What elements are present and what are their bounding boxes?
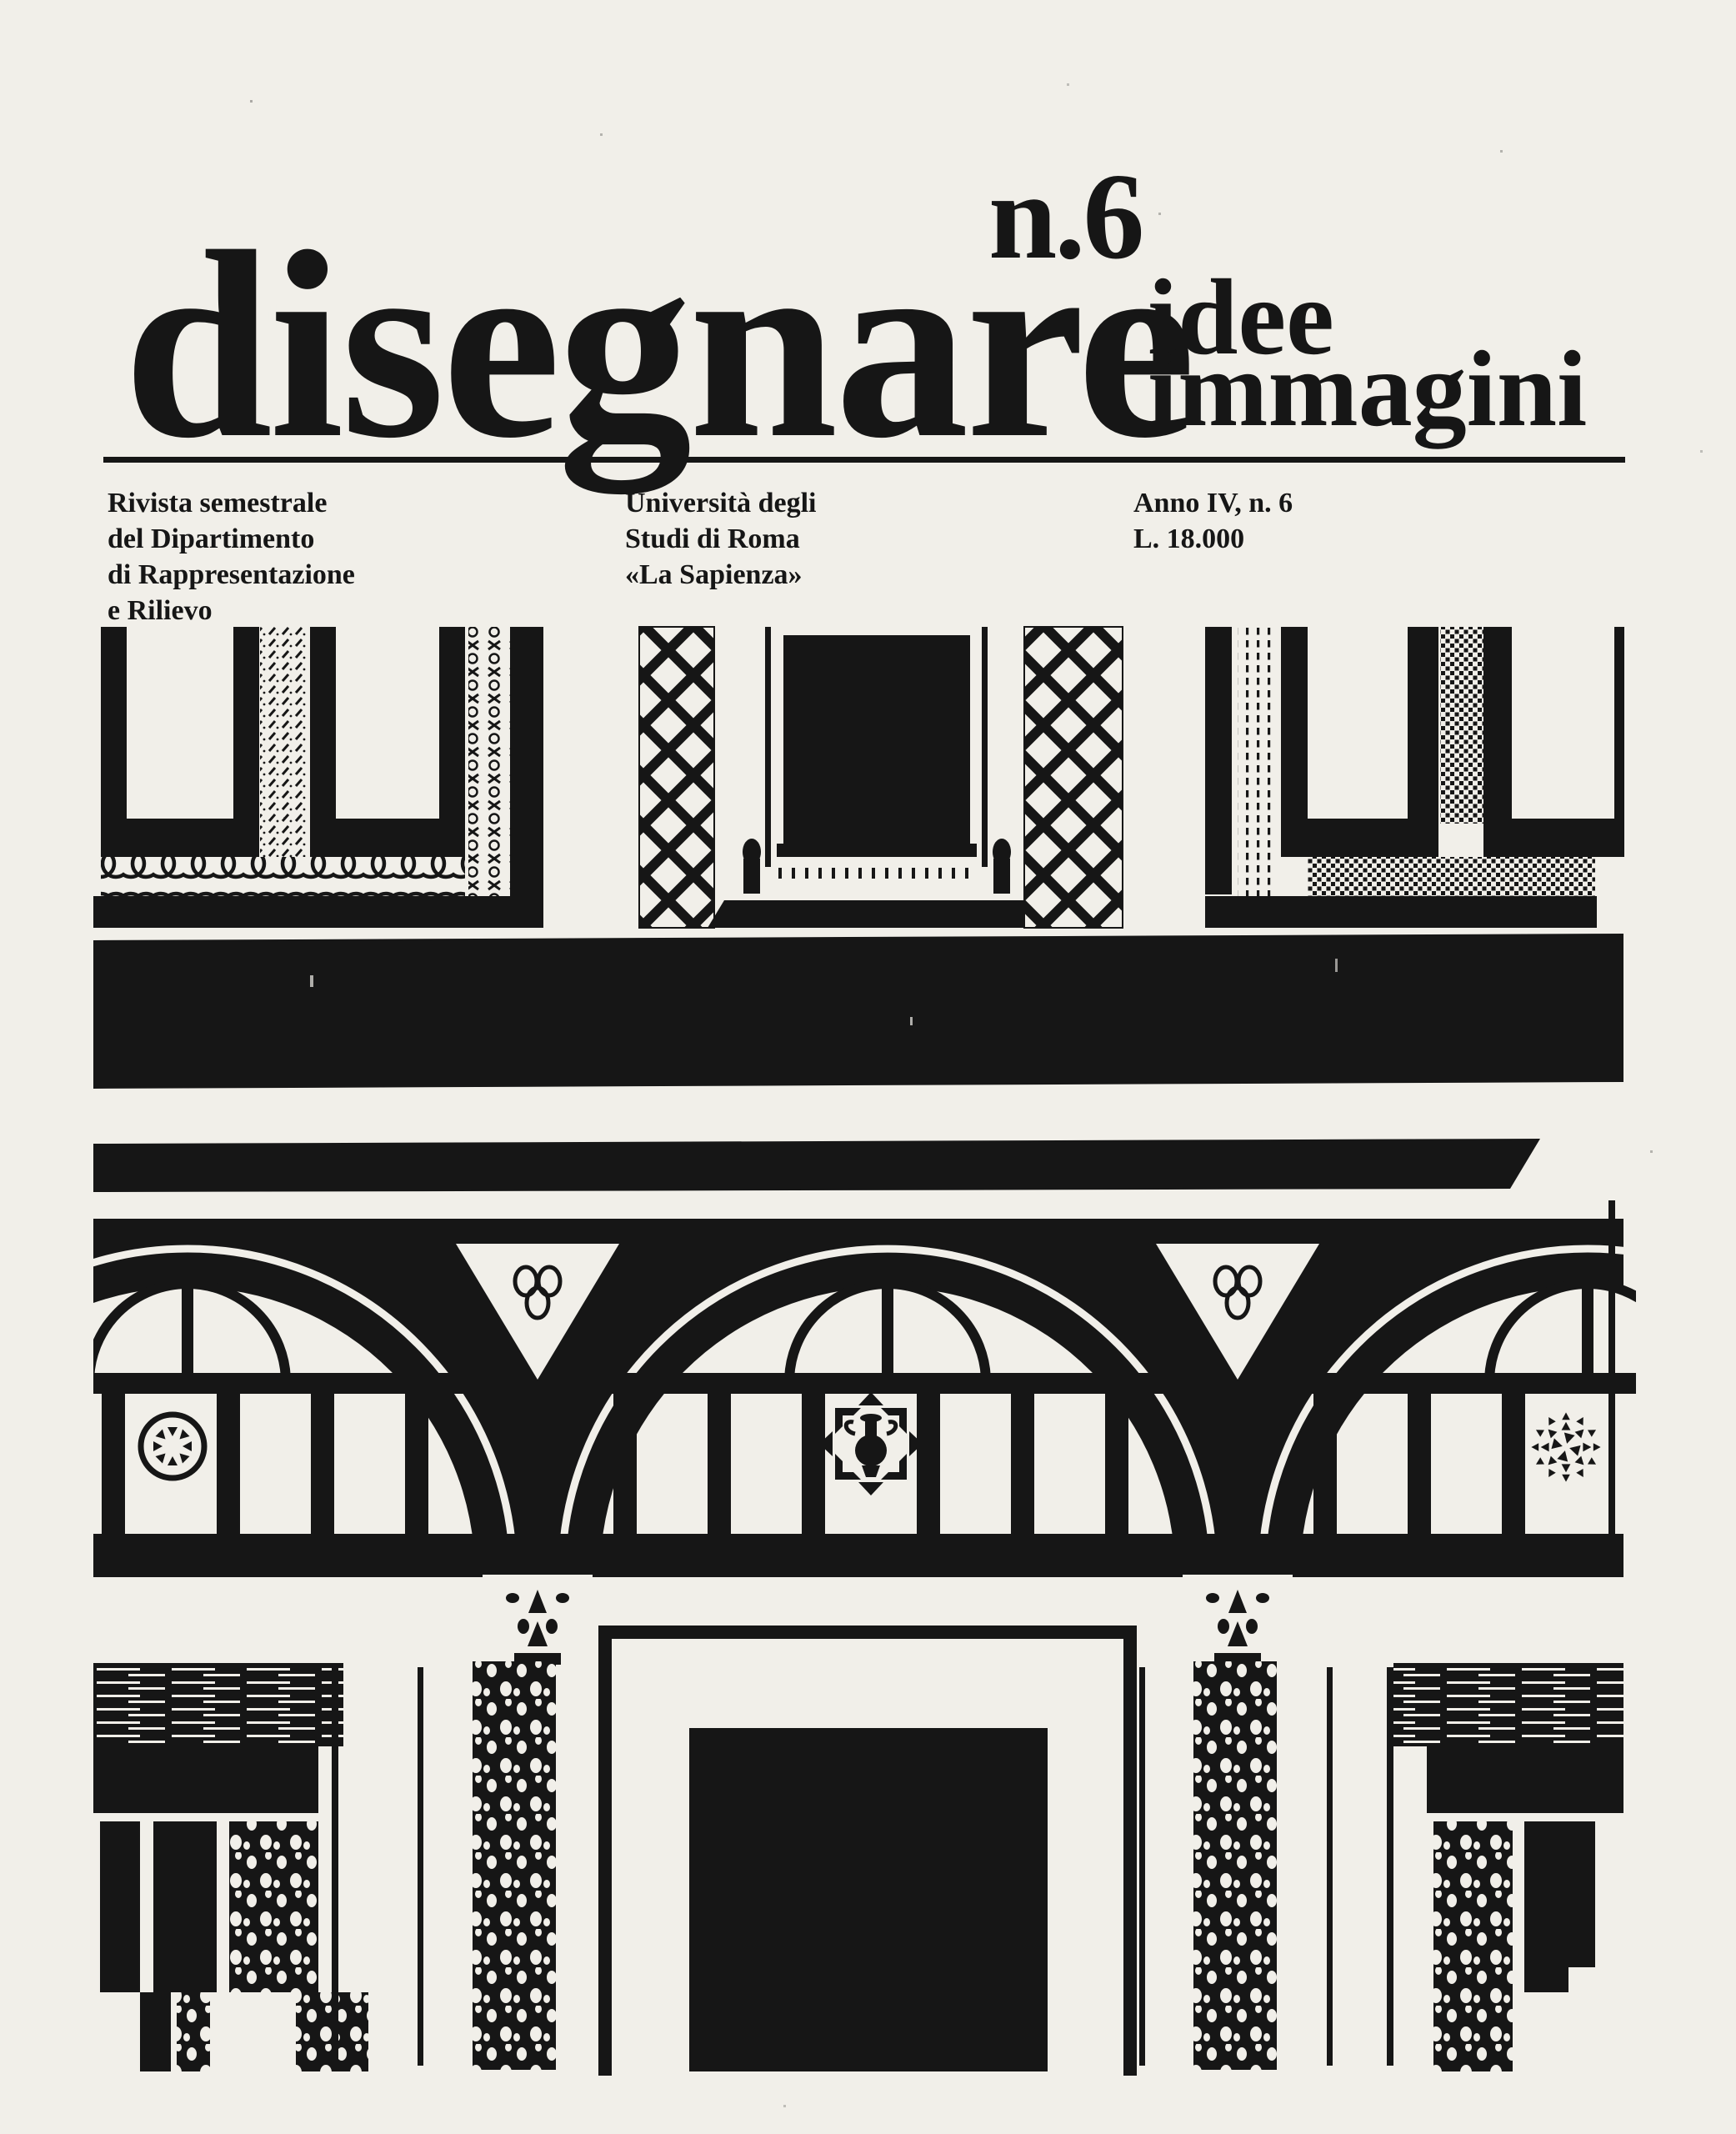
column-shaft (1193, 1661, 1277, 2070)
price-line: L. 18.000 (1133, 521, 1293, 557)
arcade (93, 1200, 1636, 1666)
publication-line: di Rappresentazione (108, 557, 355, 593)
magazine-subtitle-line2: immagini (1148, 335, 1587, 443)
university-line: «La Sapienza» (625, 557, 816, 593)
masthead-divider-rule (103, 457, 1625, 463)
magazine-title: disegnare (123, 211, 1193, 479)
issue-line: Anno IV, n. 6 (1133, 485, 1293, 521)
paper-noise (250, 100, 253, 103)
corinthian-capital (1183, 1575, 1293, 1666)
publication-line: e Rilievo (108, 593, 355, 629)
cover-photo (93, 625, 1636, 2076)
corinthian-capital (483, 1575, 593, 1666)
university-name: Università degli Studi di Roma «La Sapie… (625, 485, 816, 593)
central-portal (605, 1632, 1130, 2076)
university-line: Università degli (625, 485, 816, 521)
issue-and-price: Anno IV, n. 6 L. 18.000 (1133, 485, 1293, 557)
right-portal (1387, 1663, 1623, 2071)
publication-description: Rivista semestrale del Dipartimento di R… (108, 485, 355, 629)
ground-floor (93, 1632, 1623, 2076)
magazine-cover: n.6 disegnare idee immagini Rivista seme… (0, 0, 1736, 2134)
university-line: Studi di Roma (625, 521, 816, 557)
rosette-medallion-left (141, 1415, 204, 1478)
publication-line: del Dipartimento (108, 521, 355, 557)
frieze-bands (93, 934, 1623, 1192)
column-shaft (473, 1661, 556, 2070)
upper-floor-windows (93, 627, 1624, 928)
publication-line: Rivista semestrale (108, 485, 355, 521)
left-portal (93, 1663, 368, 2071)
